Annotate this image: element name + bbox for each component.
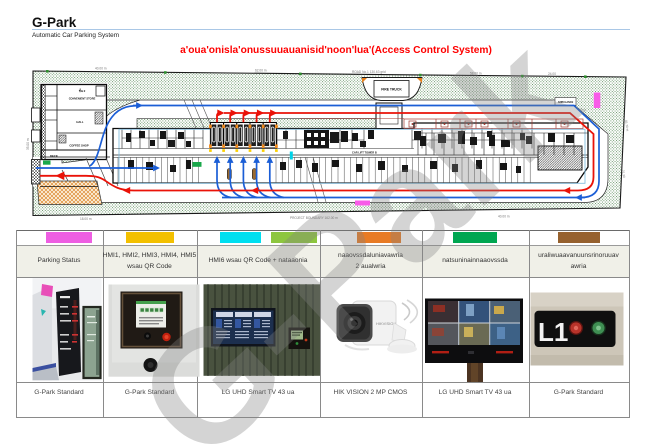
svg-text:L1: L1 xyxy=(538,317,568,347)
svg-text:HIKVISION: HIKVISION xyxy=(376,321,396,326)
